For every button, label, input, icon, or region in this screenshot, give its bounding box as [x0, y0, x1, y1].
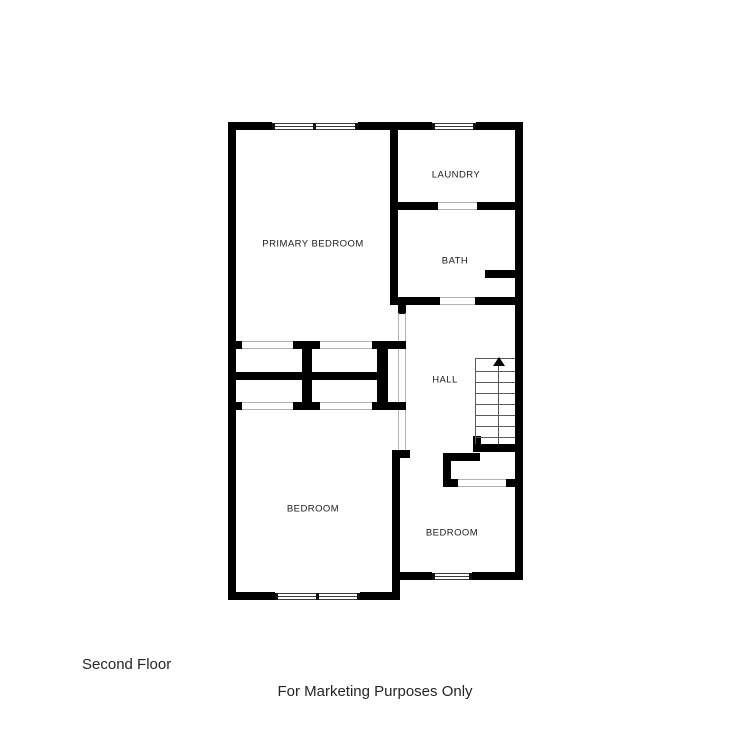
closet-opening — [320, 348, 372, 349]
wall-segment — [392, 450, 410, 458]
wall-segment — [377, 341, 388, 410]
window — [275, 593, 360, 600]
window — [272, 123, 358, 130]
wall-segment — [506, 479, 515, 487]
wall-segment — [228, 592, 275, 600]
window — [432, 573, 472, 580]
door-opening — [398, 410, 399, 450]
door-opening — [405, 410, 406, 450]
closet-opening — [458, 486, 506, 487]
marketing-disclaimer: For Marketing Purposes Only — [277, 683, 472, 700]
stair-tread — [476, 382, 515, 383]
room-label-bath: BATH — [442, 256, 468, 266]
closet-opening — [458, 479, 506, 480]
wall-segment — [372, 402, 406, 410]
wall-segment — [515, 122, 523, 580]
stair-tread — [476, 415, 515, 416]
stair-tread — [476, 426, 515, 427]
stairs-up-arrow-icon — [493, 357, 505, 366]
room-label-bedroom-left: BEDROOM — [287, 504, 339, 514]
door-opening — [440, 304, 475, 305]
room-label-hall: HALL — [432, 375, 458, 385]
closet-opening — [320, 341, 372, 342]
closet-opening — [320, 409, 372, 410]
room-label-primary-bedroom: PRIMARY BEDROOM — [262, 239, 363, 249]
window — [432, 123, 476, 130]
door-opening — [438, 209, 477, 210]
wall-segment — [392, 450, 400, 600]
wall-segment — [302, 341, 312, 410]
wall-segment — [358, 122, 432, 130]
wall-segment — [477, 202, 515, 210]
door-opening — [398, 349, 399, 402]
closet-opening — [242, 409, 293, 410]
wall-segment — [293, 402, 320, 410]
door-opening — [440, 297, 475, 298]
stair-tread — [476, 437, 515, 438]
wall-segment — [390, 297, 440, 305]
room-label-laundry: LAUNDRY — [432, 170, 480, 180]
wall-segment — [443, 479, 458, 487]
closet-opening — [320, 402, 372, 403]
wall-segment — [228, 122, 236, 600]
wall-segment — [475, 297, 515, 305]
closet-opening — [242, 348, 293, 349]
stair-tread — [476, 371, 515, 372]
door-opening — [398, 313, 399, 341]
stair-tread — [476, 404, 515, 405]
wall-segment — [485, 270, 515, 278]
closet-opening — [242, 341, 293, 342]
wall-segment — [477, 444, 523, 452]
door-opening — [405, 349, 406, 402]
wall-segment — [390, 130, 398, 305]
wall-segment — [400, 572, 432, 580]
door-opening — [405, 313, 406, 341]
floor-title: Second Floor — [82, 656, 171, 673]
room-label-bedroom-right: BEDROOM — [426, 528, 478, 538]
wall-segment — [398, 202, 438, 210]
closet-opening — [242, 402, 293, 403]
door-opening — [438, 202, 477, 203]
floor-plan-canvas: PRIMARY BEDROOM LAUNDRY BATH HALL BEDROO… — [0, 0, 750, 750]
stair-run-line — [498, 364, 499, 444]
stair-tread — [476, 393, 515, 394]
staircase — [475, 358, 515, 444]
